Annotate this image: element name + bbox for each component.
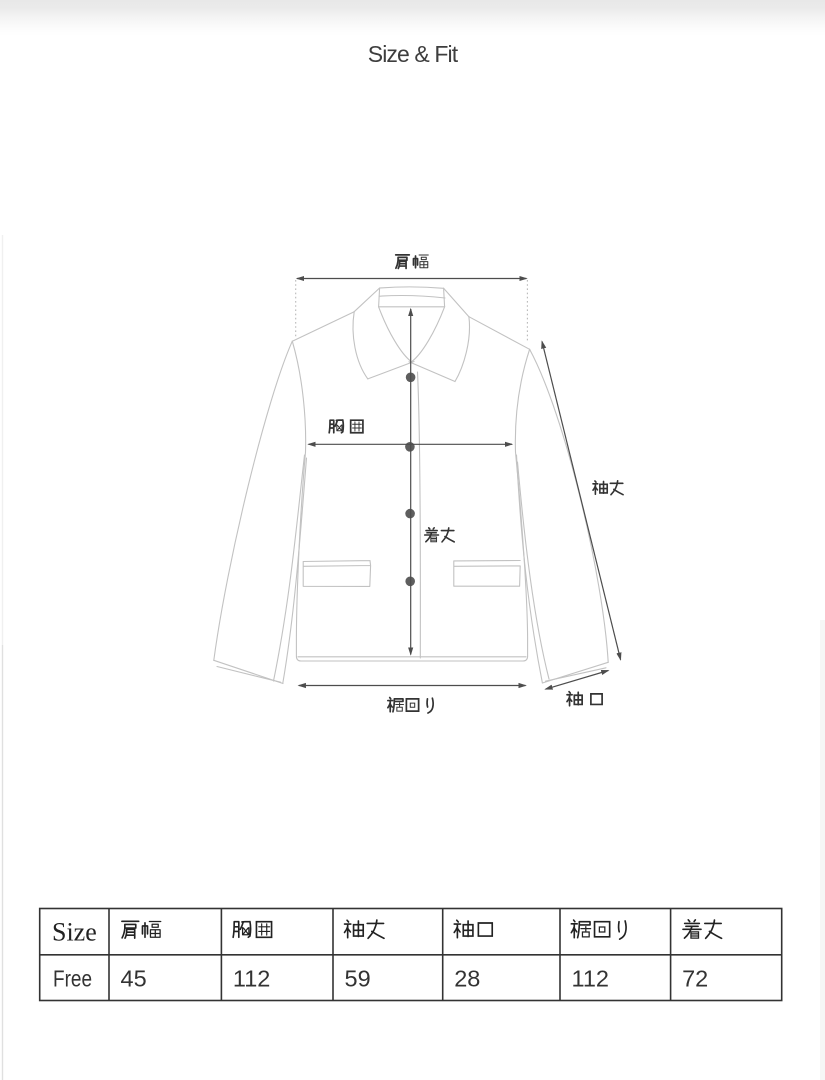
svg-text:112: 112 — [572, 966, 609, 992]
svg-text:72: 72 — [682, 966, 708, 992]
svg-text:45: 45 — [121, 966, 147, 992]
svg-text:Free: Free — [53, 966, 92, 992]
svg-text:59: 59 — [345, 966, 371, 992]
svg-text:112: 112 — [233, 966, 270, 992]
svg-text:Size: Size — [52, 918, 97, 947]
svg-text:28: 28 — [454, 966, 480, 992]
